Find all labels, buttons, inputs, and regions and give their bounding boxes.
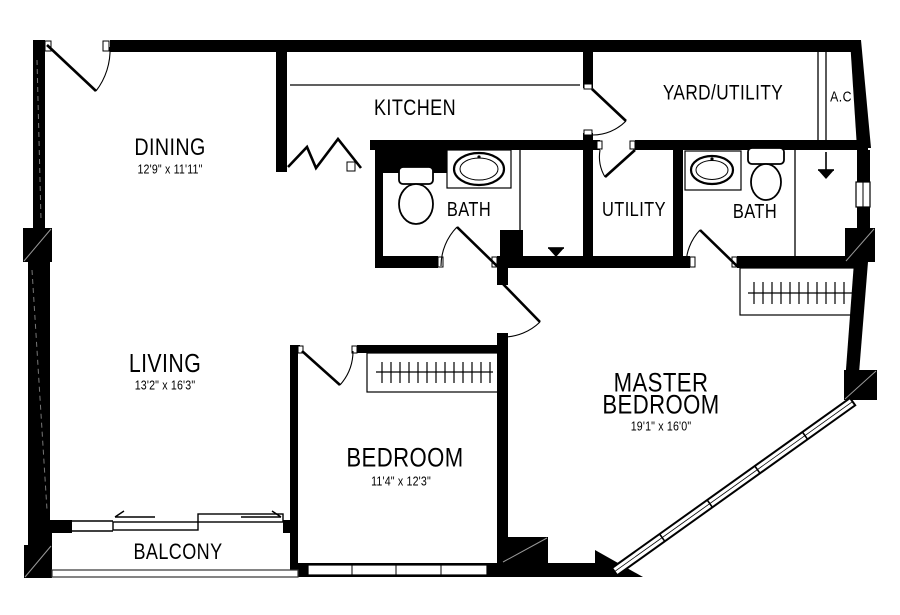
entry-door (47, 45, 110, 91)
room-dims-master: 19'1" x 16'0" (631, 420, 692, 433)
door-jambs (45, 41, 737, 353)
wall-balcony-left (28, 533, 52, 545)
floor-plan: DINING 12'9" x 11'11" KITCHEN BATH UTILI… (0, 0, 900, 615)
block-bath1-corner (500, 230, 523, 256)
wall-bedroom-right (497, 353, 508, 563)
bath1-door (441, 227, 497, 266)
room-label-ac: A.C (830, 90, 852, 105)
wall-hall-band-3 (737, 256, 865, 268)
wall-utility-right (673, 150, 683, 256)
wall-top (110, 40, 858, 52)
wall-hall-band-1 (375, 256, 438, 268)
room-dims-dining: 12'9" x 11'11" (137, 163, 202, 176)
wall-hall-band-2 (497, 256, 690, 268)
wall-bedroom-left (290, 345, 298, 577)
utility-door (599, 150, 635, 177)
walls (23, 40, 877, 578)
room-label-bedroom: BEDROOM (346, 445, 463, 472)
room-label-kitchen: KITCHEN (374, 97, 456, 119)
room-label-balcony: BALCONY (133, 541, 222, 563)
wall-dining-kitchen (276, 40, 287, 172)
balcony-edge (52, 570, 298, 577)
wall-bath1-left (375, 150, 383, 256)
balcony-sliding-door (72, 511, 283, 531)
bedroom-window (308, 565, 487, 575)
yard-utility-door (592, 89, 626, 135)
wall-left-lower (28, 262, 50, 520)
room-dims-living: 13'2" x 16'3" (135, 379, 196, 392)
shower-head-bath2 (818, 152, 834, 179)
wall-master-door-stub-top (497, 268, 508, 285)
master-bedroom-door (503, 284, 540, 337)
room-label-bath2: BATH (733, 202, 777, 222)
bath1-toilet (399, 167, 433, 224)
wall-kitchen-right-top (583, 48, 593, 88)
wall-bedroom-top (357, 345, 503, 353)
room-label-utility: UTILITY (602, 200, 666, 220)
room-label-bath1: BATH (447, 200, 491, 220)
wall-utility-left (583, 150, 593, 256)
bath1-sink (447, 150, 511, 188)
room-label-living: LIVING (129, 350, 201, 376)
room-dims-bedroom: 11'4" x 12'3" (371, 475, 431, 488)
room-label-yard-utility: YARD/UTILITY (663, 83, 783, 104)
bath2-toilet (748, 148, 784, 200)
room-label-master-line2: BEDROOM (602, 392, 719, 419)
wall-right-top-slant (850, 40, 871, 148)
room-label-dining: DINING (134, 136, 205, 160)
bath2-sink (685, 151, 741, 190)
wall-living-bottom-left (28, 520, 72, 533)
bedroom-door (302, 351, 353, 385)
